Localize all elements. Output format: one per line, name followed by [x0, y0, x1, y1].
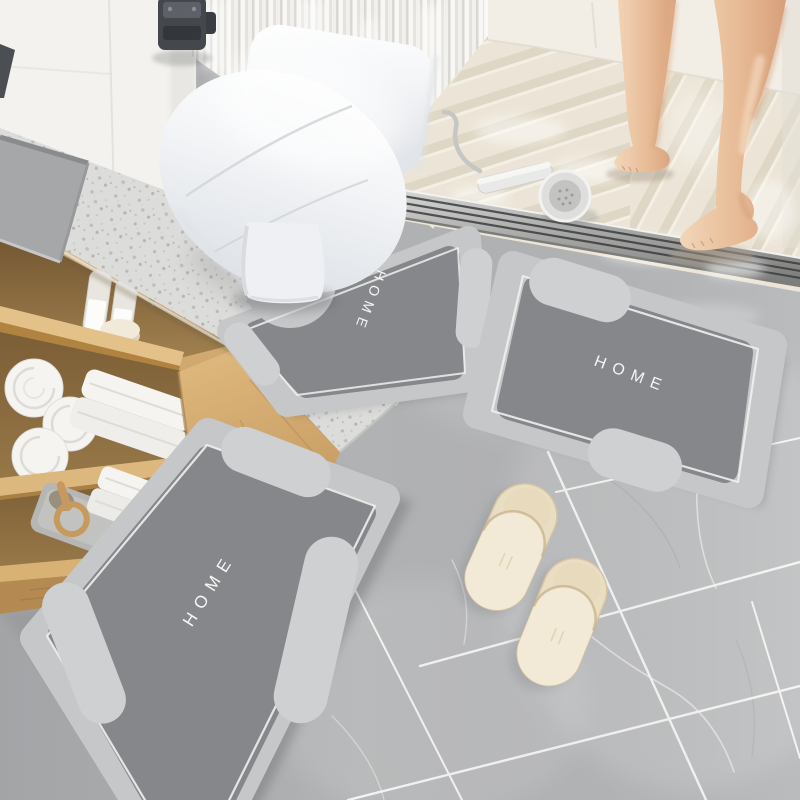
- bathroom-mats-product-photo: HOME HOME HOME: [0, 0, 800, 800]
- toilet-base: [243, 222, 325, 303]
